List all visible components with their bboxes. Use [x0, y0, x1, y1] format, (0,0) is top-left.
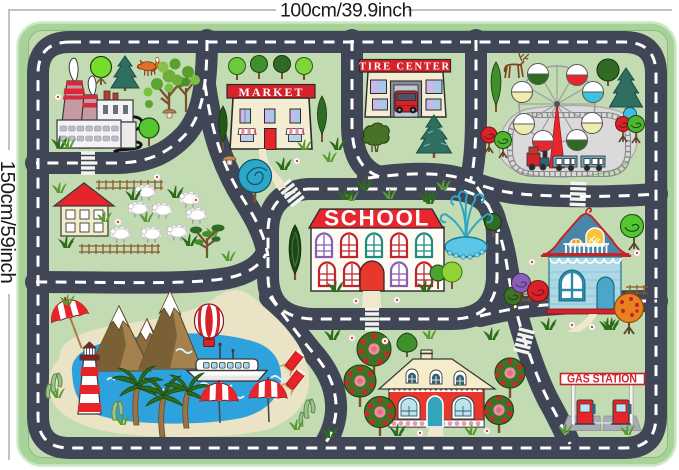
svg-text:100cm/39.9inch: 100cm/39.9inch	[280, 0, 412, 22]
svg-text:GAS STATION: GAS STATION	[567, 374, 637, 386]
svg-text:MARKET: MARKET	[239, 85, 305, 99]
svg-text:150cm/59inch: 150cm/59inch	[0, 161, 19, 284]
svg-text:TIRE CENTER: TIRE CENTER	[359, 62, 451, 73]
svg-text:SCHOOL: SCHOOL	[324, 206, 430, 231]
